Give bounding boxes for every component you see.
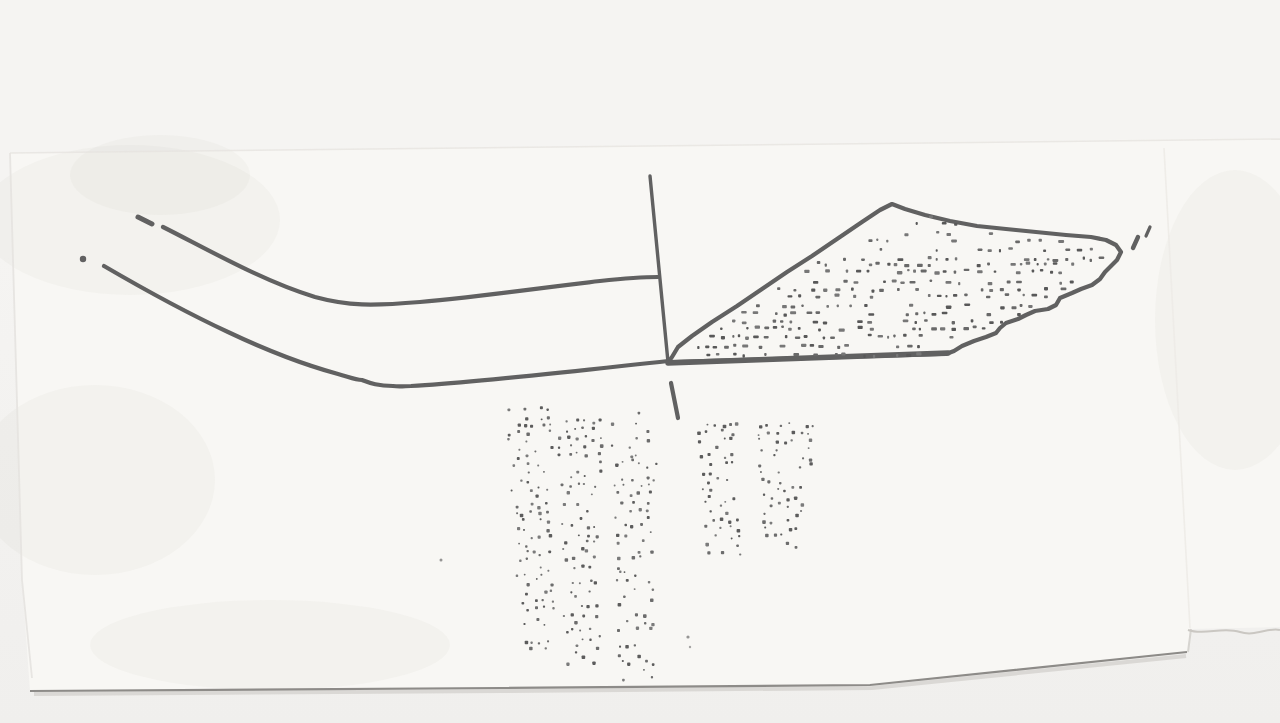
shade-blotch [70, 135, 250, 215]
scan-canvas [0, 0, 1280, 723]
ink-speck [689, 646, 691, 648]
profile-bottom-start-dot [80, 256, 86, 262]
ink-speck [440, 559, 443, 562]
scanned-figure [0, 0, 1280, 723]
ink-speck [686, 635, 689, 638]
shade-blotch [90, 600, 450, 690]
